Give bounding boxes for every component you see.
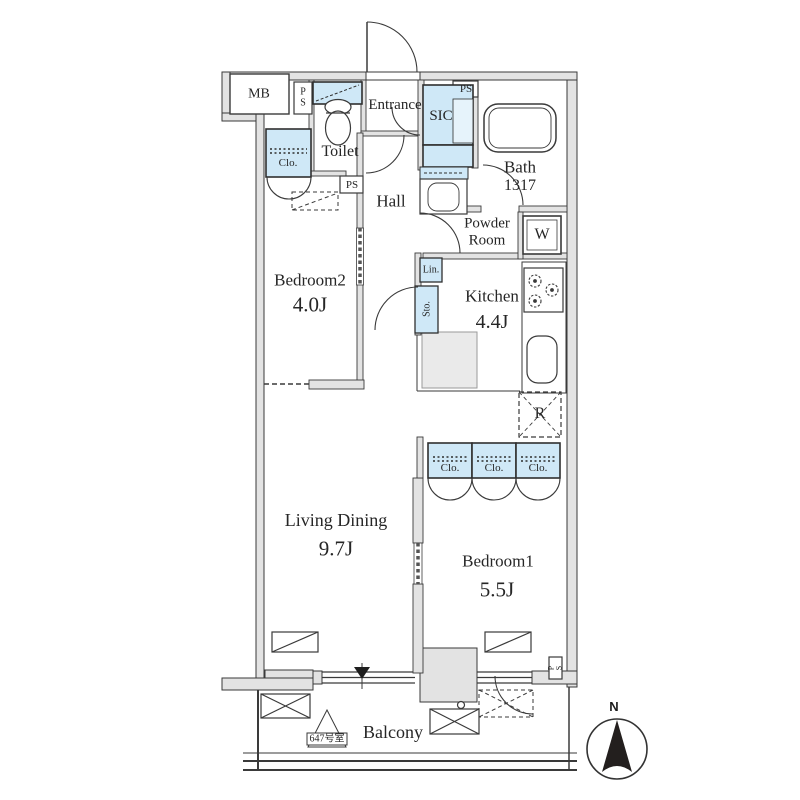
toilet-label: Toilet: [321, 143, 358, 161]
bedroom1-closet-label-3: Clo.: [529, 462, 548, 474]
powder-room-label: Powder Room: [450, 216, 524, 249]
pipe-space-label-top-left: PS: [298, 88, 308, 109]
pipe-space-label-bottom: PS: [548, 664, 565, 672]
washbasin-icon: [420, 179, 467, 214]
bedroom2-label: Bedroom2: [274, 272, 346, 291]
entrance-threshold: [366, 72, 420, 80]
compass-icon: [587, 719, 647, 779]
sic-label: SIC: [429, 108, 452, 125]
bedroom1-closet-label-2: Clo.: [485, 462, 504, 474]
bathtub-icon: [484, 104, 556, 152]
balcony-label: Balcony: [363, 723, 423, 743]
kitchen-label: Kitchen: [465, 288, 519, 307]
bedroom2-closet-label: Clo.: [279, 157, 298, 169]
bedroom1-label: Bedroom1: [462, 553, 534, 572]
meter-box-label: MB: [248, 86, 270, 101]
unit-number-label: 647号室: [307, 733, 348, 746]
storage-label: Sto.: [422, 301, 433, 317]
pipe-space-label-top-right: PS: [460, 83, 472, 95]
pipe-space-label-mid: PS: [346, 179, 358, 191]
living-dining-size-label: 9.7J: [319, 537, 353, 560]
bath-size-label: 1317: [504, 177, 536, 195]
living-dining-label: Living Dining: [285, 511, 388, 531]
refrigerator-label: R: [535, 405, 546, 423]
window-center-marker: [354, 663, 370, 689]
compass-north-label: N: [609, 700, 618, 714]
kitchen-sink-icon: [527, 336, 557, 383]
floor-plan: MB PS Toilet Entrance SIC PS Bath 1317 P…: [0, 0, 800, 800]
sic-inner-shelf: [453, 99, 473, 143]
bedroom1-closet-label-1: Clo.: [441, 462, 460, 474]
air-conditioner-icons: [272, 632, 531, 652]
kitchen-size-label: 4.4J: [476, 311, 509, 333]
stove-icon: [524, 268, 563, 312]
hall-label: Hall: [376, 193, 405, 212]
kitchen-open-space: [422, 332, 477, 388]
washer-label: W: [534, 226, 549, 244]
toilet-fixture-icon: [325, 100, 351, 146]
bedroom2-size-label: 4.0J: [293, 293, 327, 316]
floor-plan-drawing: [0, 0, 800, 800]
linen-label: Lin.: [423, 265, 439, 276]
bath-label: Bath: [504, 159, 536, 178]
bedroom1-size-label: 5.5J: [480, 578, 514, 601]
entrance-label: Entrance: [368, 97, 421, 114]
